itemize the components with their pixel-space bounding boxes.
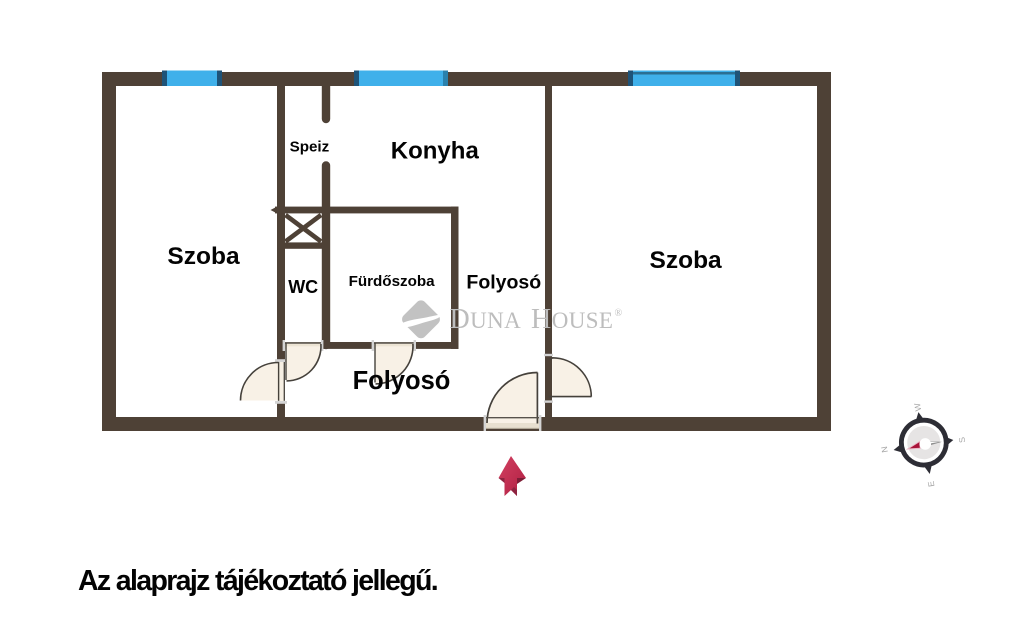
- svg-text:Folyosó: Folyosó: [466, 272, 541, 294]
- svg-text:N: N: [879, 446, 890, 454]
- svg-text:Az alaprajz tájékoztató jelleg: Az alaprajz tájékoztató jellegű.: [78, 565, 437, 597]
- svg-text:Fürdőszoba: Fürdőszoba: [349, 273, 436, 290]
- svg-text:E: E: [926, 480, 937, 488]
- svg-text:Szoba: Szoba: [650, 247, 723, 274]
- svg-text:Speiz: Speiz: [290, 139, 330, 156]
- svg-text:W: W: [912, 402, 923, 412]
- svg-text:WC: WC: [288, 277, 318, 297]
- svg-text:Szoba: Szoba: [167, 243, 240, 270]
- svg-text:Folyosó: Folyosó: [353, 367, 451, 395]
- svg-text:®: ®: [615, 308, 623, 319]
- svg-text:DUNA HOUSE: DUNA HOUSE: [450, 304, 614, 335]
- svg-text:S: S: [956, 436, 967, 444]
- svg-text:Konyha: Konyha: [391, 138, 480, 165]
